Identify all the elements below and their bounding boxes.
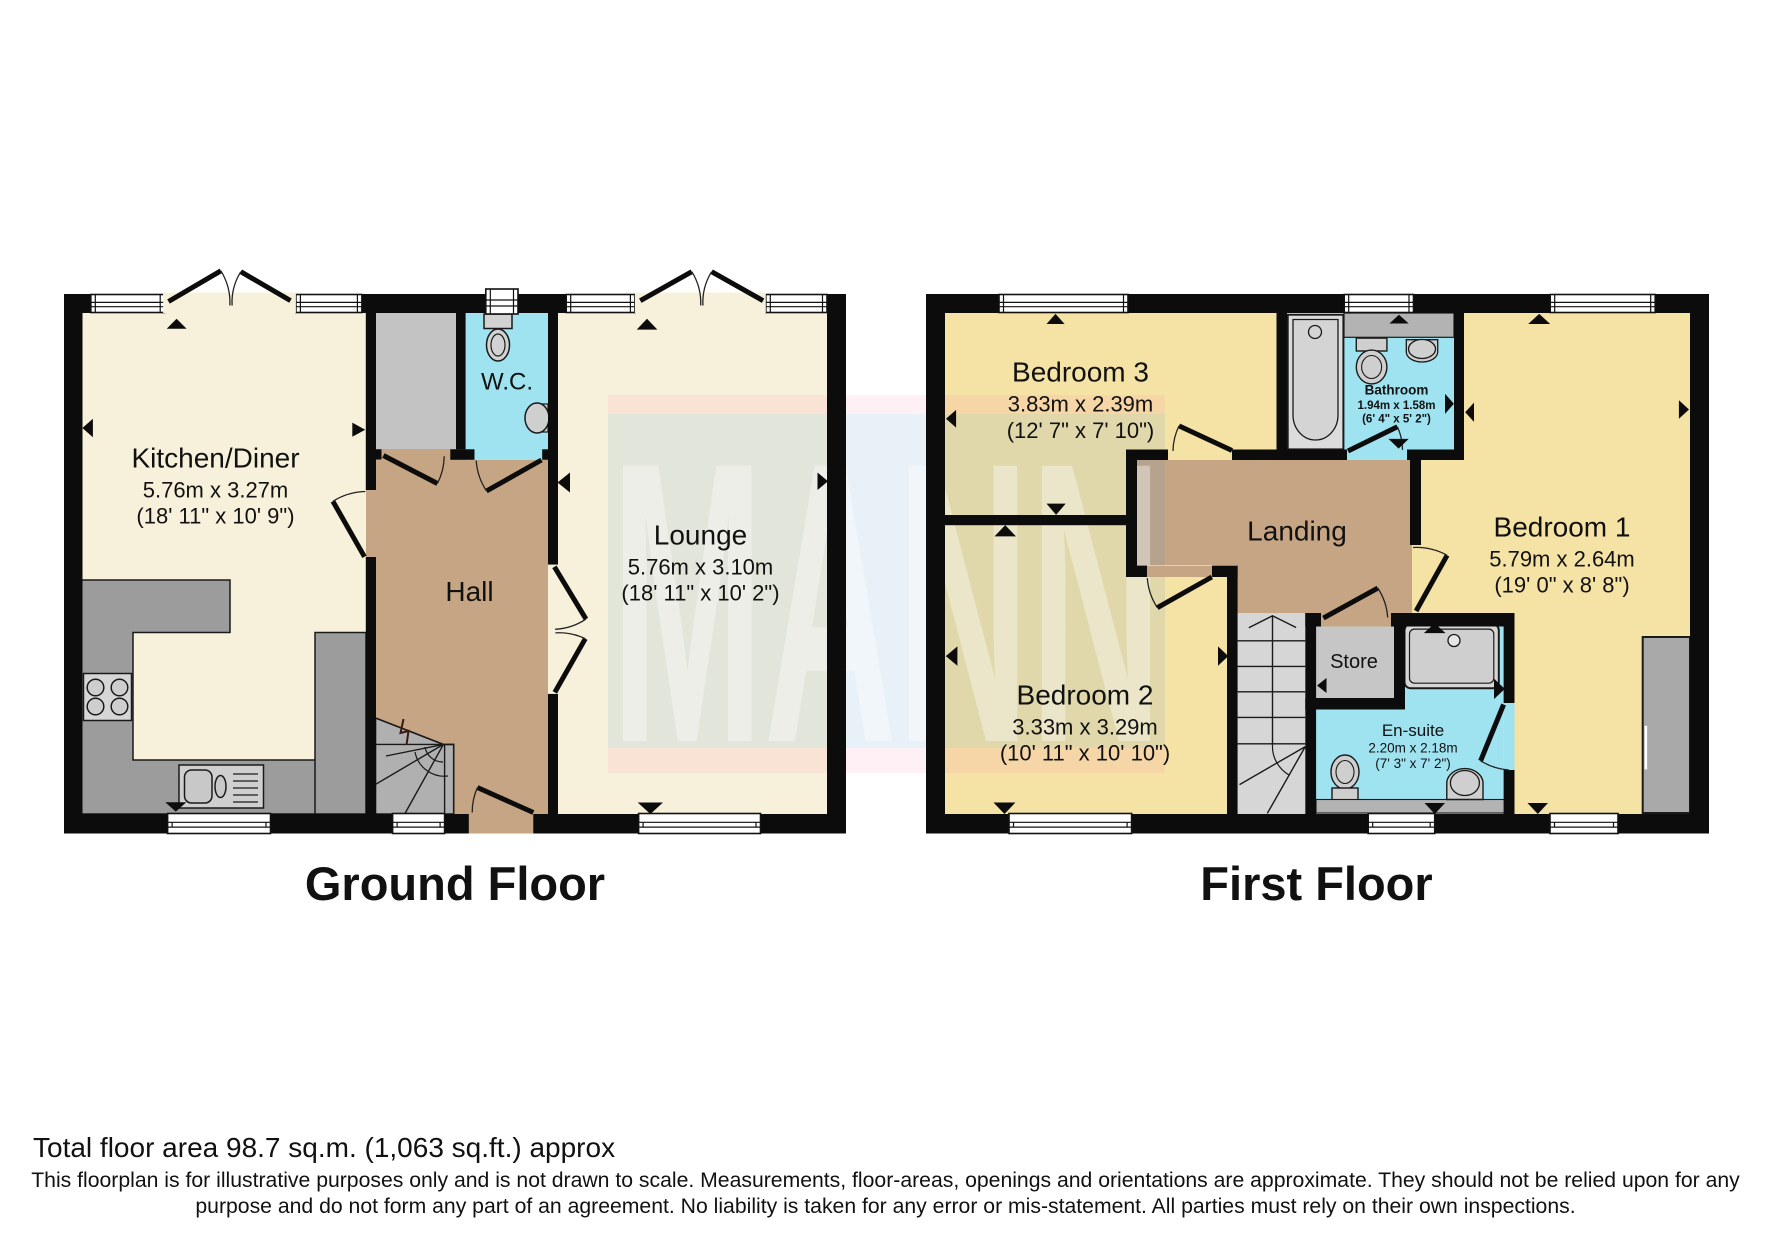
svg-text:(12' 7" x 7' 10"): (12' 7" x 7' 10") [1007,418,1155,443]
svg-text:(19' 0" x 8' 8"): (19' 0" x 8' 8") [1494,573,1629,598]
svg-text:Bedroom 3: Bedroom 3 [1012,357,1149,388]
svg-text:Hall: Hall [445,576,493,607]
svg-text:Store: Store [1330,651,1378,673]
svg-text:En-suite: En-suite [1382,721,1444,740]
svg-text:(7' 3" x 7' 2"): (7' 3" x 7' 2") [1375,756,1451,771]
svg-text:3.33m x 3.29m: 3.33m x 3.29m [1012,715,1158,740]
svg-text:3.83m x 2.39m: 3.83m x 2.39m [1008,392,1154,417]
svg-text:Bedroom 1: Bedroom 1 [1494,512,1631,543]
svg-text:purpose and do not form any pa: purpose and do not form any part of an a… [195,1195,1575,1218]
svg-text:Bathroom: Bathroom [1365,383,1429,398]
svg-text:This floorplan is for illustra: This floorplan is for illustrative purpo… [31,1169,1740,1192]
svg-text:W.C.: W.C. [481,369,533,396]
svg-text:Total floor area 98.7 sq.m. (1: Total floor area 98.7 sq.m. (1,063 sq.ft… [33,1132,615,1163]
svg-text:1.94m x 1.58m: 1.94m x 1.58m [1357,400,1435,412]
svg-text:(10' 11" x 10' 10"): (10' 11" x 10' 10") [1000,741,1170,766]
svg-text:(18' 11" x 10' 9"): (18' 11" x 10' 9") [136,504,294,529]
svg-text:(6' 4" x 5' 2"): (6' 4" x 5' 2") [1362,414,1431,426]
svg-text:(18' 11" x 10' 2"): (18' 11" x 10' 2") [621,581,779,606]
svg-text:Lounge: Lounge [654,520,747,551]
svg-text:First Floor: First Floor [1200,857,1432,910]
svg-text:Ground Floor: Ground Floor [305,857,605,910]
svg-text:5.76m x 3.27m: 5.76m x 3.27m [143,478,289,503]
svg-text:Bedroom 2: Bedroom 2 [1017,680,1154,711]
svg-text:5.79m x 2.64m: 5.79m x 2.64m [1489,547,1635,572]
svg-text:Kitchen/Diner: Kitchen/Diner [131,443,299,474]
svg-text:Landing: Landing [1247,516,1347,547]
svg-text:5.76m x 3.10m: 5.76m x 3.10m [628,555,774,580]
svg-text:2.20m x 2.18m: 2.20m x 2.18m [1368,740,1457,755]
